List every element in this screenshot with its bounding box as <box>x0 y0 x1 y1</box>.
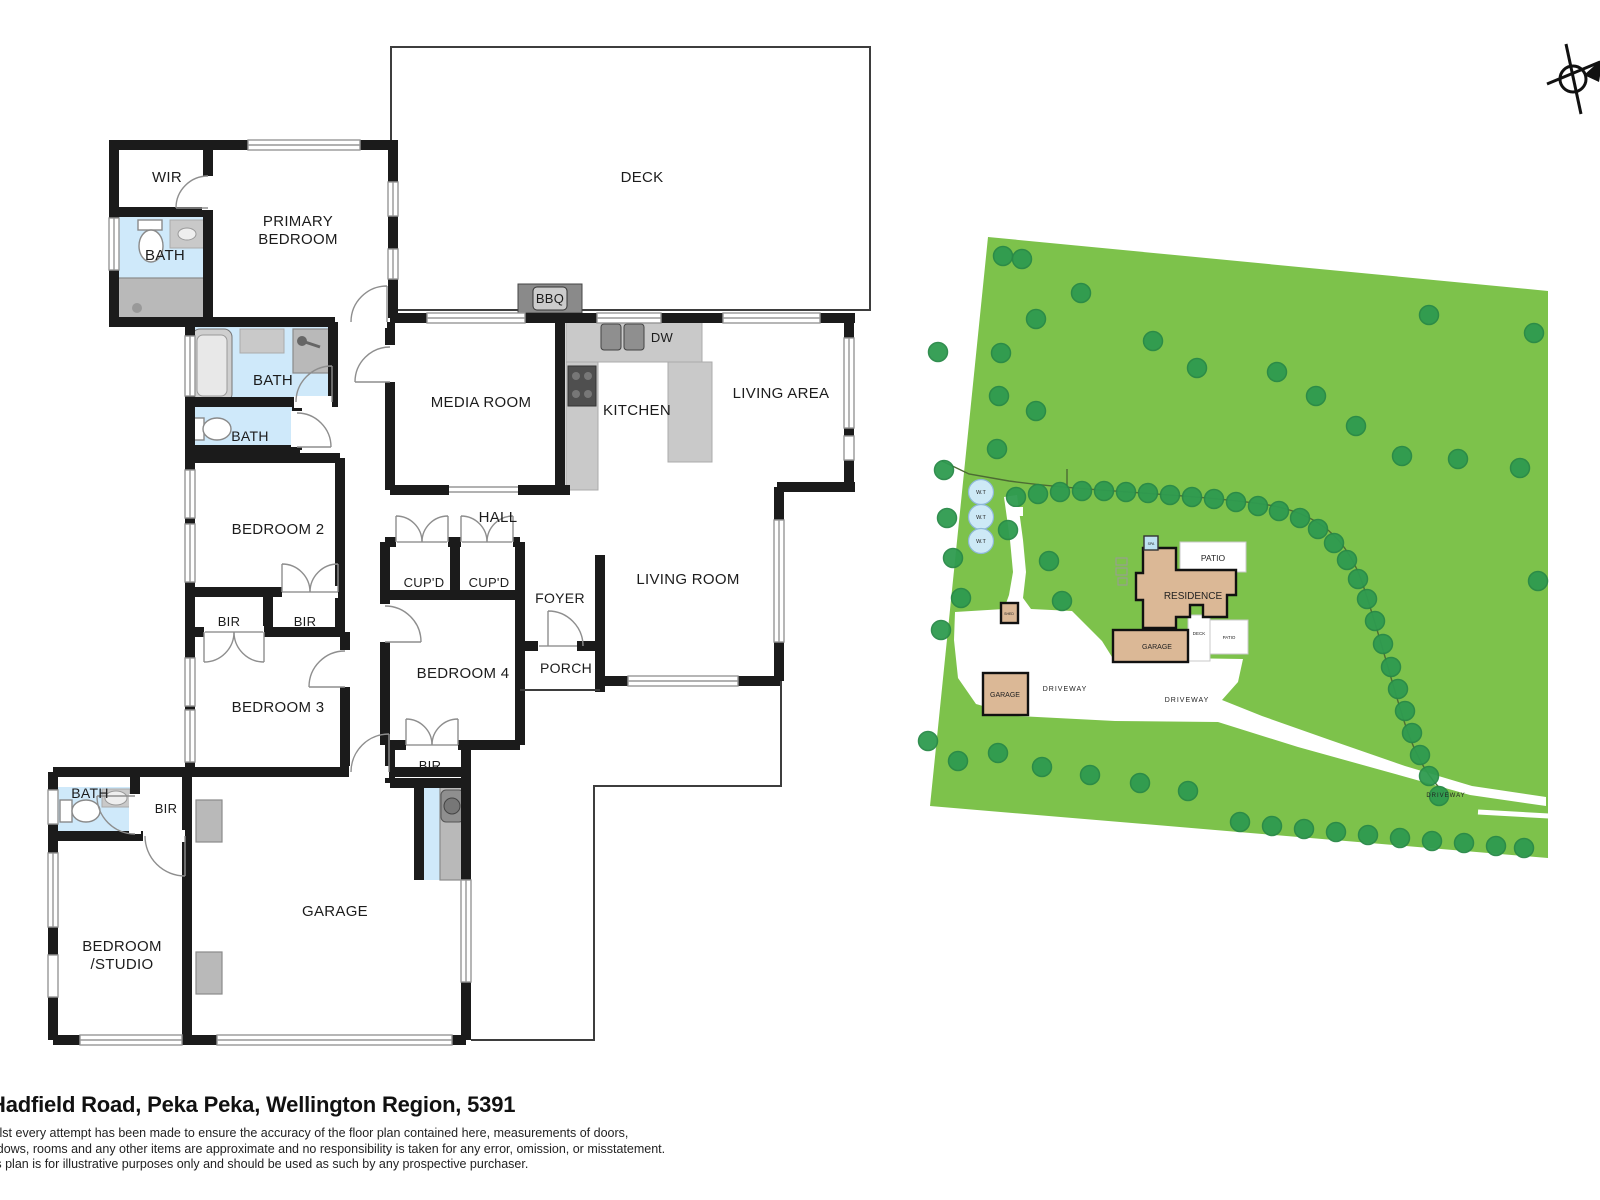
tree-icon <box>1270 502 1289 521</box>
label-primary-bedroom: PRIMARY <box>263 213 333 230</box>
label-site-deck: DECK <box>1193 631 1206 636</box>
label-hall: HALL <box>479 509 518 526</box>
vanity-icon <box>240 329 284 353</box>
tree-icon <box>1053 592 1072 611</box>
label-bath-main: BATH <box>253 372 293 389</box>
tree-icon <box>1423 832 1442 851</box>
tree-icon <box>1382 658 1401 677</box>
tree-icon <box>1515 839 1534 858</box>
tree-icon <box>1325 534 1344 553</box>
toilet-icon <box>72 800 100 822</box>
tree-icon <box>1309 520 1328 539</box>
drain-icon <box>132 303 142 313</box>
label-driveway-3: DRIVEWAY <box>1426 793 1465 799</box>
tree-icon <box>949 752 968 771</box>
tree-icon <box>1529 572 1548 591</box>
label-bath-studio: BATH <box>71 785 109 801</box>
toilet-icon <box>203 418 231 440</box>
svg-text:/STUDIO: /STUDIO <box>91 956 154 973</box>
label-bir-4: BIR <box>155 801 178 816</box>
label-site-spa: SPA <box>1148 542 1155 546</box>
label-kitchen: KITCHEN <box>603 402 671 419</box>
label-driveway-1: DRIVEWAY <box>1043 686 1088 693</box>
label-media-room: MEDIA ROOM <box>431 394 532 411</box>
tree-icon <box>1139 484 1158 503</box>
tree-icon <box>1227 493 1246 512</box>
tree-icon <box>1027 310 1046 329</box>
label-bedroom-studio: BEDROOM <box>82 938 162 955</box>
tree-icon <box>1249 497 1268 516</box>
kitchen-island <box>668 362 712 462</box>
tree-icon <box>1144 332 1163 351</box>
storage-box <box>196 952 222 994</box>
toilet-tank-icon <box>60 800 72 822</box>
label-foyer: FOYER <box>535 590 585 606</box>
tree-icon <box>1095 482 1114 501</box>
tree-icon <box>1393 447 1412 466</box>
tree-icon <box>1051 483 1070 502</box>
label-bedroom-2: BEDROOM 2 <box>232 521 325 538</box>
thin-edges <box>205 487 781 1040</box>
tree-icon <box>992 344 1011 363</box>
storage-box <box>196 800 222 842</box>
tree-icon <box>999 521 1018 540</box>
tree-icon <box>1420 767 1439 786</box>
label-bath-wc: BATH <box>231 428 269 444</box>
tree-icon <box>1396 702 1415 721</box>
tree-icon <box>1007 488 1026 507</box>
sink-icon <box>624 324 644 350</box>
tree-icon <box>1349 570 1368 589</box>
label-bir-3: BIR <box>419 758 442 773</box>
tree-icon <box>1525 324 1544 343</box>
tree-icon <box>1268 363 1287 382</box>
tree-icon <box>938 509 957 528</box>
tree-icon <box>1374 635 1393 654</box>
tree-icon <box>990 387 1009 406</box>
toilet-tank-icon <box>138 220 162 230</box>
label-bbq: BBQ <box>536 291 564 306</box>
tree-icon <box>1295 820 1314 839</box>
tree-icon <box>1359 826 1378 845</box>
svg-text:BEDROOM: BEDROOM <box>258 231 338 248</box>
tree-icon <box>1366 612 1385 631</box>
tree-icon <box>944 549 963 568</box>
tree-icon <box>1487 837 1506 856</box>
disclaimer-line-1: Whilst every attempt has been made to en… <box>0 1126 900 1142</box>
label-bedroom-4: BEDROOM 4 <box>417 665 510 682</box>
tree-icon <box>1179 782 1198 801</box>
label-cupboard-2: CUP'D <box>469 575 510 590</box>
tree-icon <box>1403 724 1422 743</box>
tree-icon <box>1131 774 1150 793</box>
tree-icon <box>1117 483 1136 502</box>
tree-icon <box>1081 766 1100 785</box>
tree-icon <box>1307 387 1326 406</box>
tree-icon <box>952 589 971 608</box>
tree-icon <box>1073 482 1092 501</box>
disclaimer-line-3: This plan is for illustrative purposes o… <box>0 1157 900 1173</box>
label-wt: W.T <box>976 515 986 521</box>
tree-icon <box>1347 417 1366 436</box>
tree-icon <box>932 621 951 640</box>
washer-drum-icon <box>444 798 460 814</box>
label-driveway-2: DRIVEWAY <box>1165 697 1210 704</box>
tree-icon <box>1449 450 1468 469</box>
tree-icon <box>935 461 954 480</box>
tree-icon <box>1040 552 1059 571</box>
label-deck: DECK <box>621 169 664 186</box>
label-wt: W.T <box>976 490 986 496</box>
sink-icon <box>601 324 621 350</box>
label-living-area: LIVING AREA <box>733 385 830 402</box>
disclaimer: Whilst every attempt has been made to en… <box>0 1126 900 1173</box>
tree-icon <box>1205 490 1224 509</box>
tree-icon <box>1391 829 1410 848</box>
tree-icon <box>989 744 1008 763</box>
label-bir-2: BIR <box>294 614 317 629</box>
tree-icon <box>929 343 948 362</box>
label-bath-ensuite: BATH <box>145 247 185 264</box>
tree-icon <box>1389 680 1408 699</box>
label-cupboard-1: CUP'D <box>404 575 445 590</box>
site-plan: W.T W.T W.T PATIO RESIDENCE GARAGE DECK … <box>919 237 1550 858</box>
tree-icon <box>1263 817 1282 836</box>
tree-icon <box>1511 459 1530 478</box>
label-garage: GARAGE <box>302 903 368 920</box>
tree-icon <box>1072 284 1091 303</box>
site-deck <box>1188 615 1210 661</box>
tree-icon <box>988 440 1007 459</box>
floorplan-page: WIR BATH PRIMARY BEDROOM DECK BBQ MEDIA … <box>0 0 1600 1200</box>
hob-icon <box>568 366 596 406</box>
tree-icon <box>994 247 1013 266</box>
floor-plan: WIR BATH PRIMARY BEDROOM DECK BBQ MEDIA … <box>48 47 870 1045</box>
tree-icon <box>1231 813 1250 832</box>
label-site-garage-attached: GARAGE <box>1142 644 1172 651</box>
label-site-shed: SHED <box>1004 612 1014 616</box>
tree-icon <box>1291 509 1310 528</box>
footer: Hadfield Road, Peka Peka, Wellington Reg… <box>0 1092 900 1173</box>
tree-icon <box>1358 590 1377 609</box>
site-marker <box>1013 507 1023 516</box>
tree-icon <box>1455 834 1474 853</box>
label-living-room: LIVING ROOM <box>636 571 739 588</box>
tree-icon <box>919 732 938 751</box>
label-site-patio: PATIO <box>1201 553 1226 563</box>
shower-ensuite <box>118 278 204 320</box>
tree-icon <box>1027 402 1046 421</box>
compass-icon <box>1547 44 1600 114</box>
tree-icon <box>1188 359 1207 378</box>
tree-icon <box>1183 488 1202 507</box>
label-wir: WIR <box>152 169 182 186</box>
label-site-patio-small: PATIO <box>1223 635 1236 640</box>
tree-icon <box>1029 485 1048 504</box>
label-site-residence: RESIDENCE <box>1164 591 1223 602</box>
tree-icon <box>1420 306 1439 325</box>
label-wt: W.T <box>976 539 986 545</box>
tree-icon <box>1411 746 1430 765</box>
plan-canvas: WIR BATH PRIMARY BEDROOM DECK BBQ MEDIA … <box>0 0 1600 1200</box>
disclaimer-line-2: windows, rooms and any other items are a… <box>0 1142 900 1158</box>
label-bir-1: BIR <box>218 614 241 629</box>
label-dw: DW <box>651 330 674 345</box>
tree-icon <box>1033 758 1052 777</box>
label-porch: PORCH <box>540 660 592 676</box>
label-bedroom-3: BEDROOM 3 <box>232 699 325 716</box>
address-title: Hadfield Road, Peka Peka, Wellington Reg… <box>0 1092 900 1118</box>
tree-icon <box>1161 486 1180 505</box>
tree-icon <box>1013 250 1032 269</box>
label-site-garage-detached: GARAGE <box>990 692 1020 699</box>
tree-icon <box>1327 823 1346 842</box>
tree-icon <box>1338 551 1357 570</box>
